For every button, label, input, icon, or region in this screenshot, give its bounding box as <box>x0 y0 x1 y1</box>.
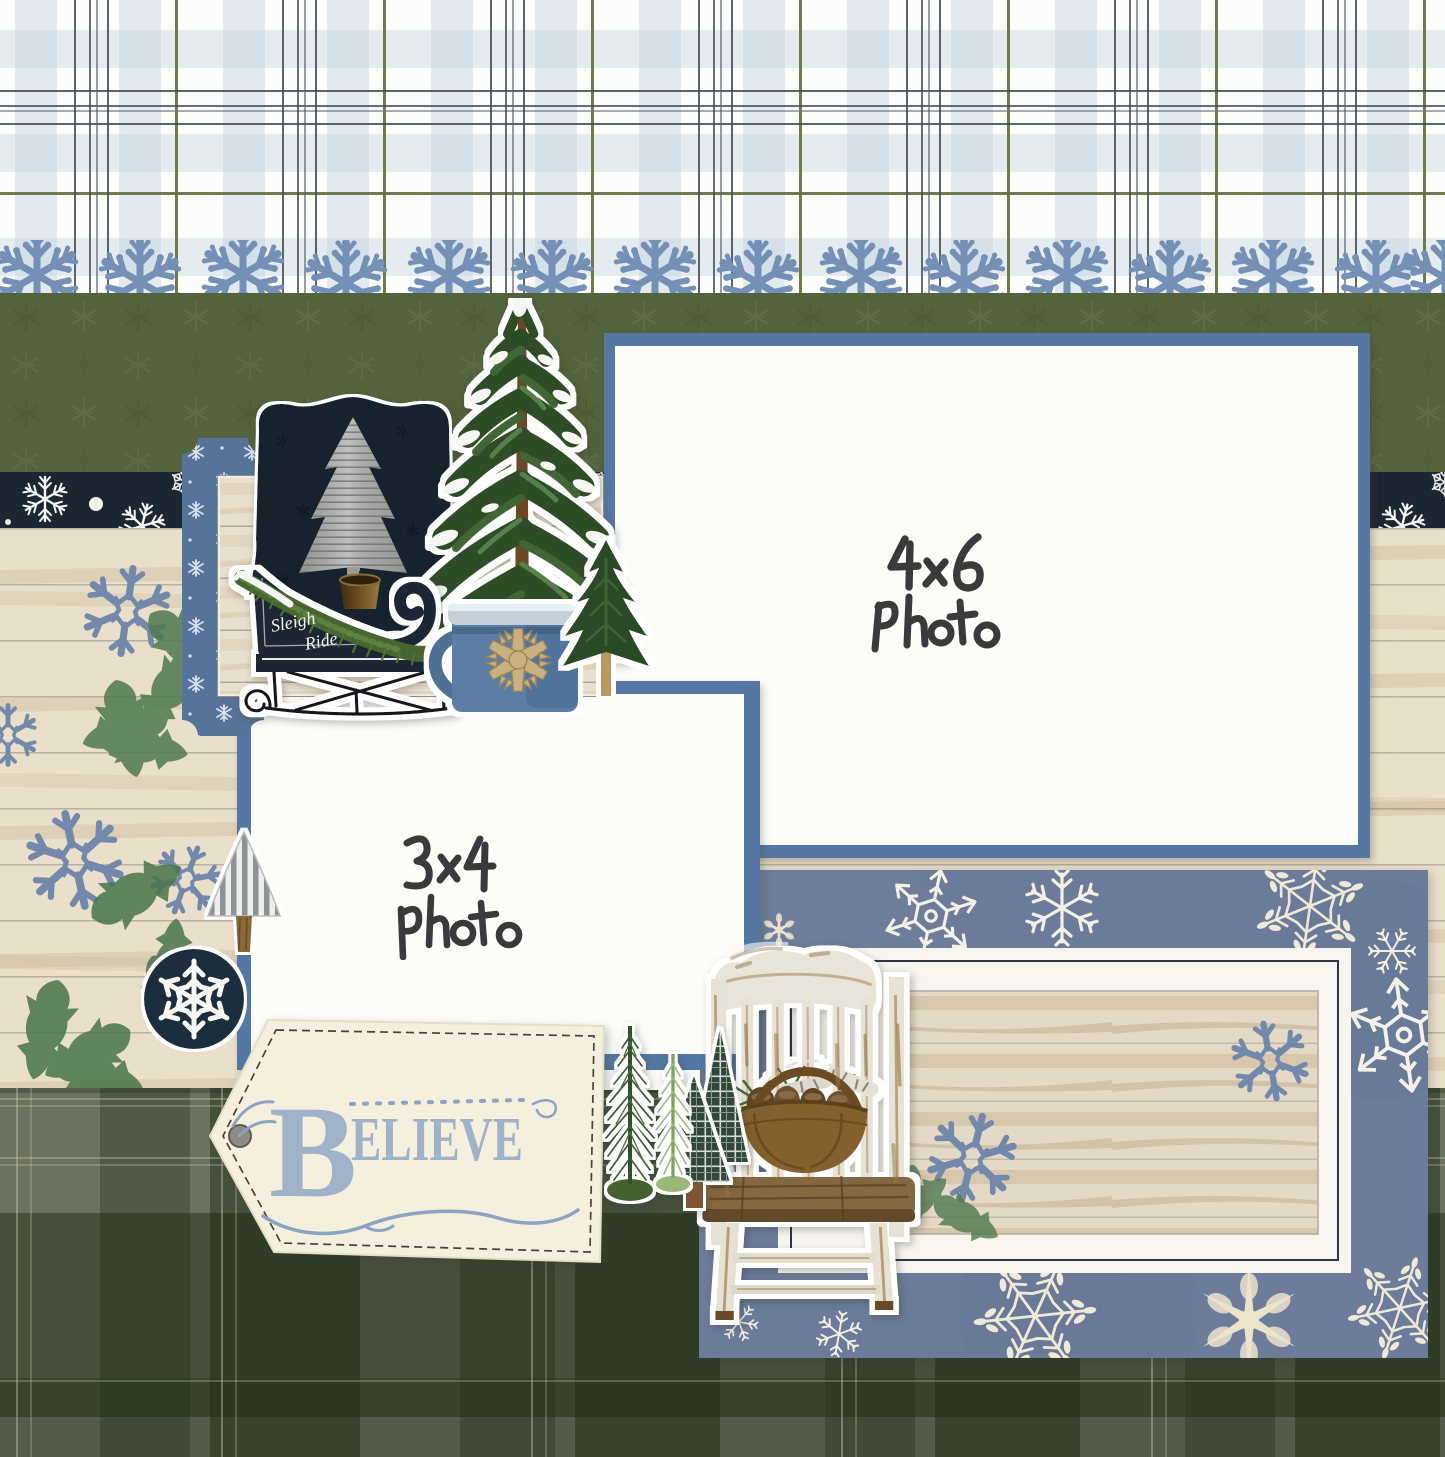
svg-text:ELIEVE: ELIEVE <box>351 1106 523 1174</box>
svg-text:B: B <box>269 1078 357 1225</box>
